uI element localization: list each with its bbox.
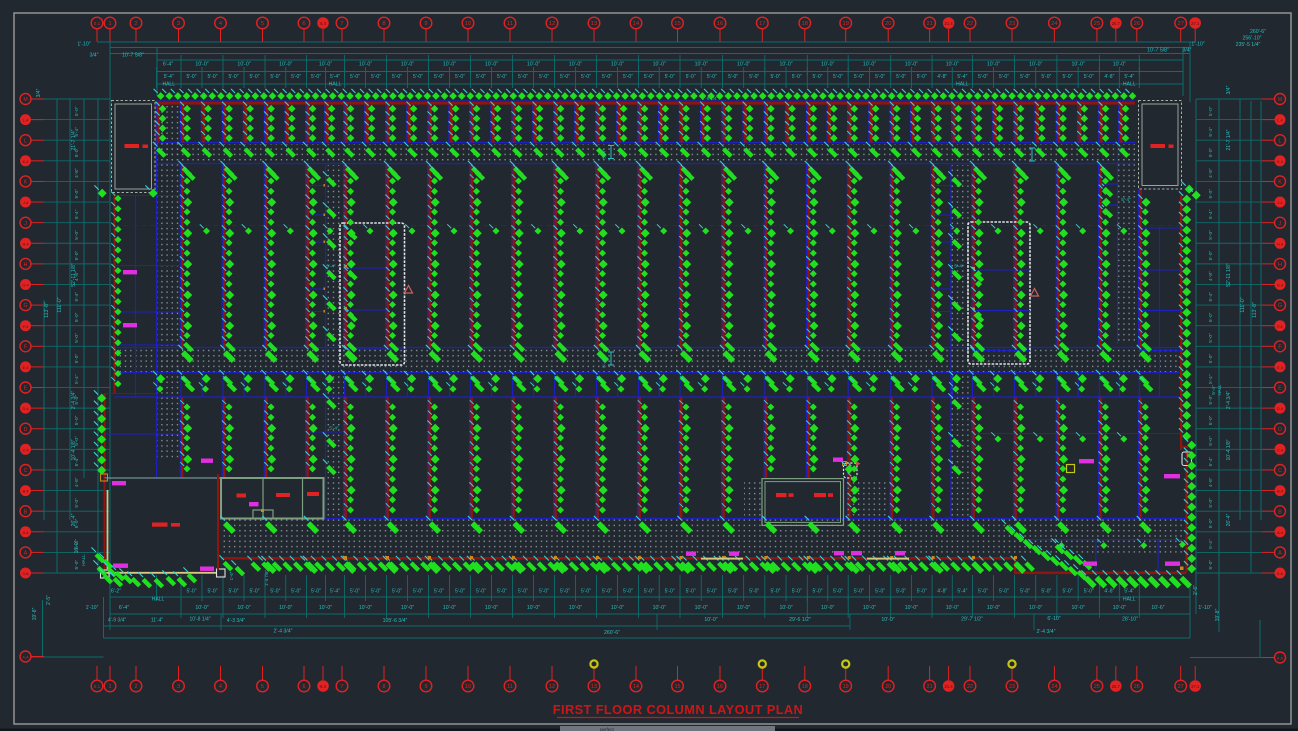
svg-text:25: 25: [1094, 21, 1100, 27]
svg-text:1′-10″: 1′-10″: [86, 605, 99, 611]
svg-text:5′-0″: 5′-0″: [311, 74, 321, 80]
svg-text:D: D: [24, 427, 28, 433]
svg-text:113′-8″: 113′-8″: [1252, 302, 1258, 318]
svg-text:5′-4″: 5′-4″: [1208, 292, 1214, 302]
svg-text:5′-0″: 5′-0″: [74, 250, 80, 260]
svg-text:11: 11: [507, 21, 513, 27]
svg-text:10′-0″: 10′-0″: [359, 605, 372, 611]
svg-text:B.4: B.4: [1277, 489, 1284, 494]
svg-text:22: 22: [967, 684, 973, 690]
svg-text:9: 9: [424, 21, 427, 27]
svg-text:D.4: D.4: [1277, 406, 1284, 411]
svg-text:26: 26: [1134, 684, 1140, 690]
svg-text:5′-0″: 5′-0″: [74, 147, 80, 157]
svg-text:3/4″: 3/4″: [1182, 48, 1191, 54]
svg-text:5′-0″: 5′-0″: [74, 354, 80, 364]
svg-text:2′-4 3/4″: 2′-4 3/4″: [1037, 629, 1056, 635]
svg-text:5′-0″: 5′-0″: [434, 589, 444, 595]
svg-text:5′-0″: 5′-0″: [707, 589, 717, 595]
svg-text:5′-0″: 5′-0″: [270, 589, 280, 595]
svg-text:2: 2: [134, 21, 137, 27]
svg-text:HALL: HALL: [81, 554, 86, 566]
svg-text:6.4: 6.4: [320, 684, 326, 689]
svg-text:5′-4″: 5′-4″: [74, 539, 80, 549]
svg-text:10′-0″: 10′-0″: [946, 605, 959, 611]
svg-text:5′-4″: 5′-4″: [1208, 209, 1214, 219]
svg-text:5′-0″: 5′-0″: [350, 589, 360, 595]
svg-text:21: 21: [926, 21, 932, 27]
svg-text:10′-0″: 10′-0″: [485, 62, 498, 68]
svg-text:5′-0″: 5′-0″: [602, 589, 612, 595]
svg-text:K.4: K.4: [1277, 159, 1284, 164]
svg-text:10′-0″: 10′-0″: [905, 62, 918, 68]
svg-text:5′-0″: 5′-0″: [1208, 395, 1214, 405]
svg-text:10′-0″: 10′-0″: [319, 605, 332, 611]
svg-text:5′-4″: 5′-4″: [1208, 539, 1214, 549]
svg-text:5′-4″: 5′-4″: [74, 127, 80, 137]
svg-text:HALL: HALL: [329, 82, 342, 88]
svg-text:2′-5″: 2′-5″: [46, 595, 52, 605]
svg-text:5′-0″: 5′-0″: [1041, 589, 1051, 595]
svg-text:24: 24: [1051, 21, 1058, 27]
svg-text:4′-8″: 4′-8″: [1208, 477, 1214, 487]
svg-text:15: 15: [674, 21, 680, 27]
svg-text:2: 2: [135, 684, 138, 690]
svg-text:5′-4″: 5′-4″: [1208, 127, 1214, 137]
svg-text:5′-0″: 5′-0″: [291, 74, 301, 80]
svg-text:27: 27: [1178, 684, 1184, 690]
svg-text:5′-0″: 5′-0″: [896, 74, 906, 80]
svg-text:5′-0″: 5′-0″: [560, 589, 570, 595]
svg-text:H.4: H.4: [1277, 241, 1284, 246]
svg-text:12: 12: [549, 684, 555, 690]
svg-text:5′-0″: 5′-0″: [187, 74, 197, 80]
svg-text:14: 14: [633, 21, 640, 27]
svg-text:D.4: D.4: [22, 406, 29, 411]
svg-text:14: 14: [633, 684, 639, 690]
svg-text:1′-4 7/8″: 1′-4 7/8″: [264, 570, 269, 586]
svg-text:21: 21: [927, 684, 933, 690]
svg-text:10′-0″: 10′-0″: [569, 62, 582, 68]
svg-text:K.4: K.4: [23, 159, 30, 164]
svg-text:5′-0″: 5′-0″: [74, 415, 80, 425]
svg-text:18: 18: [802, 684, 808, 690]
svg-text:C: C: [1278, 468, 1282, 474]
svg-text:5′-4″: 5′-4″: [74, 209, 80, 219]
svg-text:5′-0″: 5′-0″: [74, 518, 80, 528]
svg-text:10: 10: [465, 21, 471, 27]
svg-text:21.4: 21.4: [945, 21, 954, 26]
svg-text:5′-0″: 5′-0″: [350, 74, 360, 80]
svg-text:5′-0″: 5′-0″: [644, 589, 654, 595]
svg-text:5′-0″: 5′-0″: [1041, 74, 1051, 80]
svg-text:5: 5: [261, 21, 264, 27]
svg-text:5′-0″: 5′-0″: [518, 74, 528, 80]
svg-text:6′-4″: 6′-4″: [163, 62, 173, 68]
svg-text:5′-4″: 5′-4″: [602, 358, 608, 368]
svg-text:10′-0″: 10′-0″: [737, 605, 750, 611]
svg-text:5′-0″: 5′-0″: [1084, 589, 1094, 595]
svg-text:C.4: C.4: [22, 447, 29, 452]
svg-text:111′-0″: 111′-0″: [57, 297, 63, 312]
svg-text:3/4″: 3/4″: [36, 88, 42, 97]
svg-text:10′-0″: 10′-0″: [779, 62, 792, 68]
svg-text:10′-0″: 10′-0″: [1072, 605, 1085, 611]
svg-text:5′-0″: 5′-0″: [74, 230, 80, 240]
svg-text:5′-4″: 5′-4″: [329, 426, 339, 432]
svg-text:HALL: HALL: [1217, 384, 1222, 396]
svg-text:A.4: A.4: [1277, 530, 1284, 535]
svg-text:K: K: [24, 180, 28, 186]
svg-text:L.4: L.4: [23, 118, 29, 123]
svg-text:11′-4″: 11′-4″: [151, 618, 164, 624]
svg-text:B: B: [24, 509, 28, 515]
svg-text:5′-0″: 5′-0″: [999, 74, 1009, 80]
svg-text:26: 26: [1134, 21, 1140, 27]
svg-text:5′-0″: 5′-0″: [813, 589, 823, 595]
svg-text:10′-0″: 10′-0″: [527, 62, 540, 68]
svg-text:5′-0″: 5′-0″: [539, 589, 549, 595]
svg-text:5′-0″: 5′-0″: [999, 589, 1009, 595]
svg-text:10′-0″: 10′-0″: [569, 605, 582, 611]
svg-text:12: 12: [549, 21, 555, 27]
svg-text:5′-0″: 5′-0″: [623, 74, 633, 80]
svg-text:C.4: C.4: [1277, 447, 1284, 452]
svg-text:5′-0″: 5′-0″: [875, 589, 885, 595]
svg-text:1′-9 1/4″: 1′-9 1/4″: [702, 96, 718, 101]
svg-text:8: 8: [382, 21, 385, 27]
svg-text:5′-4″: 5′-4″: [1121, 197, 1131, 203]
svg-text:A.A: A.A: [1277, 656, 1284, 661]
svg-text:5′-0″: 5′-0″: [74, 333, 80, 343]
svg-text:5′-0″: 5′-0″: [854, 589, 864, 595]
svg-text:8: 8: [383, 684, 386, 690]
svg-text:10′-0″: 10′-0″: [704, 617, 717, 623]
svg-text:19: 19: [843, 684, 849, 690]
svg-text:24: 24: [1051, 684, 1057, 690]
svg-text:B: B: [1278, 509, 1282, 515]
svg-text:5′-0″: 5′-0″: [854, 74, 864, 80]
svg-text:10′-0″: 10′-0″: [319, 62, 332, 68]
svg-text:10′-0″: 10′-0″: [821, 605, 834, 611]
svg-text:10′-0″: 10′-0″: [237, 62, 250, 68]
svg-text:10′-0″: 10′-0″: [195, 62, 208, 68]
svg-text:7: 7: [341, 684, 344, 690]
svg-text:5′-0″: 5′-0″: [1020, 589, 1030, 595]
svg-text:4: 4: [219, 684, 222, 690]
svg-text:3: 3: [177, 21, 180, 27]
svg-text:5′-0″: 5′-0″: [560, 74, 570, 80]
svg-text:29′-6 1/2″: 29′-6 1/2″: [789, 617, 811, 623]
svg-text:5′-0″: 5′-0″: [413, 74, 423, 80]
svg-text:4′-8″: 4′-8″: [1208, 271, 1214, 281]
svg-text:10′-0″: 10′-0″: [653, 62, 666, 68]
svg-text:19′-8″: 19′-8″: [1215, 608, 1221, 621]
svg-text:4′-8″: 4′-8″: [74, 477, 80, 487]
svg-text:10′-0″: 10′-0″: [737, 62, 750, 68]
svg-text:1′-10″: 1′-10″: [1198, 605, 1211, 611]
svg-text:10′-0″: 10′-0″: [1113, 62, 1126, 68]
svg-text:5′-4″: 5′-4″: [74, 374, 80, 384]
svg-text:10′-0″: 10′-0″: [527, 605, 540, 611]
svg-text:13: 13: [591, 21, 597, 27]
svg-text:5: 5: [261, 684, 264, 690]
svg-text:10′-6″: 10′-6″: [1151, 605, 1164, 611]
svg-text:10′-0″: 10′-0″: [443, 605, 456, 611]
svg-text:10′-0″: 10′-0″: [485, 605, 498, 611]
svg-text:10′-0″: 10′-0″: [1029, 62, 1042, 68]
svg-text:21.4: 21.4: [945, 684, 954, 689]
svg-text:5′-4″: 5′-4″: [1208, 457, 1214, 467]
svg-text:5′-4″: 5′-4″: [326, 264, 336, 269]
svg-text:5′-0″: 5′-0″: [539, 74, 549, 80]
svg-text:10′-0″: 10′-0″: [987, 605, 1000, 611]
svg-text:HALL: HALL: [1123, 82, 1136, 88]
svg-text:5′-0″: 5′-0″: [74, 106, 80, 116]
svg-text:5′-0″: 5′-0″: [749, 589, 759, 595]
svg-text:6′-4″: 6′-4″: [119, 605, 129, 611]
svg-text:4′-8″: 4′-8″: [1104, 589, 1114, 595]
svg-text:10′-0″: 10′-0″: [987, 62, 1000, 68]
svg-text:5′-0″: 5′-0″: [665, 74, 675, 80]
svg-text:5′-0″: 5′-0″: [1063, 74, 1073, 80]
svg-text:5′-0″: 5′-0″: [74, 312, 80, 322]
svg-text:6: 6: [303, 684, 306, 690]
svg-text:6′-2″: 6′-2″: [111, 589, 121, 595]
svg-text:5′-0″: 5′-0″: [749, 74, 759, 80]
svg-text:10′-7 5/8″: 10′-7 5/8″: [1147, 48, 1169, 54]
svg-text:5′-0″: 5′-0″: [623, 589, 633, 595]
svg-text:5′-0″: 5′-0″: [187, 589, 197, 595]
svg-text:5′-0″: 5′-0″: [413, 589, 423, 595]
svg-text:L: L: [24, 138, 27, 144]
svg-text:10′-0″: 10′-0″: [443, 62, 456, 68]
svg-text:10′-0″: 10′-0″: [195, 605, 208, 611]
svg-text:J.4: J.4: [23, 200, 29, 205]
svg-text:F.4: F.4: [23, 324, 29, 329]
svg-text:perfect: perfect: [600, 727, 615, 731]
svg-text:3/4″: 3/4″: [89, 53, 98, 59]
svg-text:25: 25: [1094, 684, 1100, 690]
svg-text:5′-0″: 5′-0″: [644, 74, 654, 80]
svg-text:5′-4″: 5′-4″: [330, 74, 340, 80]
svg-text:5′-0″: 5′-0″: [1208, 312, 1214, 322]
svg-text:5′-0″: 5′-0″: [1208, 250, 1214, 260]
svg-text:A.A: A.A: [22, 655, 29, 660]
svg-text:5′-0″: 5′-0″: [978, 589, 988, 595]
svg-text:4′-8″: 4′-8″: [937, 74, 947, 80]
svg-text:19′-8″: 19′-8″: [32, 607, 38, 620]
svg-text:FIRST FLOOR COLUMN LAYOUT PLAN: FIRST FLOOR COLUMN LAYOUT PLAN: [553, 702, 803, 717]
svg-text:4′-8″: 4′-8″: [1208, 168, 1214, 178]
svg-text:23: 23: [1009, 684, 1015, 690]
svg-text:22: 22: [967, 21, 973, 27]
svg-text:5′-0″: 5′-0″: [1208, 415, 1214, 425]
svg-text:5′-0″: 5′-0″: [208, 74, 218, 80]
svg-text:5′-0″: 5′-0″: [686, 589, 696, 595]
svg-text:5′-0″: 5′-0″: [728, 589, 738, 595]
svg-text:5′-4″: 5′-4″: [957, 589, 967, 595]
svg-text:3/4″: 3/4″: [1226, 85, 1232, 94]
svg-text:5′-0″: 5′-0″: [208, 589, 218, 595]
svg-text:G.4: G.4: [22, 283, 29, 288]
svg-text:10′-0″: 10′-0″: [401, 62, 414, 68]
svg-text:5′-0″: 5′-0″: [311, 589, 321, 595]
svg-text:1′-10″: 1′-10″: [1191, 42, 1204, 48]
svg-text:A: A: [24, 550, 28, 556]
svg-text:5′-0″: 5′-0″: [518, 589, 528, 595]
svg-text:20: 20: [885, 21, 891, 27]
svg-text:5′-0″: 5′-0″: [476, 74, 486, 80]
svg-text:28′-10″: 28′-10″: [1122, 617, 1138, 623]
svg-text:5′-0″: 5′-0″: [497, 589, 507, 595]
svg-text:4′-8″: 4′-8″: [937, 589, 947, 595]
svg-text:5′-0″: 5′-0″: [770, 74, 780, 80]
svg-text:5′-0″: 5′-0″: [1084, 74, 1094, 80]
svg-text:23: 23: [1009, 21, 1015, 27]
svg-text:5′-4″: 5′-4″: [74, 292, 80, 302]
svg-text:5′-0″: 5′-0″: [74, 560, 80, 570]
svg-text:6′-10″: 6′-10″: [1047, 616, 1060, 622]
svg-text:5′-0″: 5′-0″: [1208, 333, 1214, 343]
svg-text:H: H: [24, 262, 28, 268]
svg-text:4′-8″: 4′-8″: [74, 168, 80, 178]
svg-text:L: L: [1279, 138, 1282, 144]
svg-text:5′-0″: 5′-0″: [74, 498, 80, 508]
svg-text:5′-0″: 5′-0″: [813, 74, 823, 80]
svg-text:5′-4″: 5′-4″: [1124, 589, 1134, 595]
svg-text:0.A: 0.A: [1277, 571, 1283, 576]
svg-text:5′-4″: 5′-4″: [954, 264, 964, 269]
svg-text:10′-0″: 10′-0″: [1072, 62, 1085, 68]
svg-text:10′-0″: 10′-0″: [695, 62, 708, 68]
svg-text:5′-0″: 5′-0″: [1208, 560, 1214, 570]
svg-text:E.4: E.4: [1277, 365, 1284, 370]
svg-text:10′-0″: 10′-0″: [653, 605, 666, 611]
svg-text:10′-0″: 10′-0″: [611, 62, 624, 68]
svg-text:M: M: [1278, 97, 1282, 103]
svg-text:10′-0″: 10′-0″: [1113, 605, 1126, 611]
svg-text:10′-0″: 10′-0″: [905, 605, 918, 611]
svg-text:5′-4″: 5′-4″: [164, 74, 174, 80]
svg-text:1′-6″: 1′-6″: [229, 571, 234, 580]
svg-text:J.4: J.4: [1277, 200, 1283, 205]
svg-text:11: 11: [507, 684, 513, 690]
svg-text:5′-0″: 5′-0″: [1208, 498, 1214, 508]
svg-text:5′-0″: 5′-0″: [74, 395, 80, 405]
svg-text:5′-0″: 5′-0″: [602, 74, 612, 80]
svg-text:10′-0″: 10′-0″: [401, 605, 414, 611]
svg-text:0.A: 0.A: [23, 571, 29, 576]
svg-text:HALL: HALL: [152, 597, 165, 603]
svg-text:6: 6: [302, 21, 305, 27]
svg-text:D: D: [1278, 427, 1282, 433]
svg-text:G: G: [1278, 303, 1282, 309]
svg-text:5′-0″: 5′-0″: [792, 74, 802, 80]
svg-text:15: 15: [675, 684, 681, 690]
svg-text:5′-0″: 5′-0″: [434, 74, 444, 80]
svg-text:5′-0″: 5′-0″: [1208, 147, 1214, 157]
svg-text:5′-0″: 5′-0″: [476, 589, 486, 595]
svg-text:10′-0″: 10′-0″: [779, 605, 792, 611]
svg-text:E: E: [1278, 386, 1282, 392]
svg-text:13: 13: [591, 684, 597, 690]
svg-text:4′-8″: 4′-8″: [1104, 74, 1114, 80]
svg-text:5′-0″: 5′-0″: [875, 74, 885, 80]
svg-text:5′-0″: 5′-0″: [1208, 106, 1214, 116]
svg-text:105′-6 3/4″: 105′-6 3/4″: [383, 618, 408, 624]
svg-text:J: J: [24, 221, 27, 227]
svg-text:5′-0″: 5′-0″: [229, 74, 239, 80]
svg-text:111′-0″: 111′-0″: [1240, 297, 1246, 312]
svg-text:5′-4″: 5′-4″: [602, 149, 608, 159]
svg-text:19: 19: [842, 21, 848, 27]
svg-text:5′-0″: 5′-0″: [1020, 74, 1030, 80]
svg-text:1: 1: [108, 21, 111, 27]
svg-text:H.4: H.4: [22, 241, 29, 246]
svg-text:4′-8″: 4′-8″: [74, 271, 80, 281]
svg-text:5′-4″: 5′-4″: [1208, 374, 1214, 384]
svg-text:5′-0″: 5′-0″: [74, 189, 80, 199]
svg-text:5′-0″: 5′-0″: [371, 589, 381, 595]
svg-text:5′-0″: 5′-0″: [455, 589, 465, 595]
svg-text:27: 27: [1177, 21, 1183, 27]
svg-text:25.7: 25.7: [1112, 21, 1121, 26]
svg-text:18: 18: [802, 21, 808, 27]
svg-text:5′-0″: 5′-0″: [1208, 518, 1214, 528]
svg-text:25.7: 25.7: [1112, 684, 1121, 689]
svg-text:16: 16: [717, 21, 723, 27]
svg-text:HALL: HALL: [162, 82, 175, 88]
svg-text:G.4: G.4: [1277, 283, 1284, 288]
svg-text:10′-0″: 10′-0″: [1029, 605, 1042, 611]
svg-text:5′-0″: 5′-0″: [770, 589, 780, 595]
svg-text:5′-0″: 5′-0″: [1208, 436, 1214, 446]
svg-text:17: 17: [759, 21, 765, 27]
svg-text:2′-6″: 2′-6″: [1193, 585, 1199, 595]
svg-text:5′-0″: 5′-0″: [896, 589, 906, 595]
svg-text:10′-0″: 10′-0″: [821, 62, 834, 68]
svg-text:5′-0″: 5′-0″: [250, 74, 260, 80]
svg-text:5′-0″: 5′-0″: [1208, 354, 1214, 364]
svg-text:5′-0″: 5′-0″: [665, 589, 675, 595]
svg-text:10′-0″: 10′-0″: [695, 605, 708, 611]
svg-text:10′-0″: 10′-0″: [611, 605, 624, 611]
svg-text:M: M: [23, 97, 27, 103]
svg-text:10′-0″: 10′-0″: [881, 617, 894, 623]
svg-text:5′-4″: 5′-4″: [74, 457, 80, 467]
svg-text:F: F: [1278, 344, 1281, 350]
svg-text:5′-4″: 5′-4″: [957, 74, 967, 80]
svg-text:256′-10″: 256′-10″: [1243, 36, 1262, 42]
svg-text:17: 17: [759, 684, 765, 690]
svg-text:J: J: [1279, 221, 1282, 227]
svg-text:10′-4 1/8″: 10′-4 1/8″: [1226, 439, 1232, 460]
svg-text:5′-0″: 5′-0″: [581, 74, 591, 80]
svg-text:5′-4″: 5′-4″: [1124, 74, 1134, 80]
svg-text:5′-0″: 5′-0″: [291, 589, 301, 595]
svg-text:5′-0″: 5′-0″: [581, 589, 591, 595]
svg-text:HALL: HALL: [1123, 597, 1136, 603]
svg-text:5′-0″: 5′-0″: [74, 436, 80, 446]
svg-text:5′-0″: 5′-0″: [371, 74, 381, 80]
svg-text:52′-11 1/8″: 52′-11 1/8″: [1226, 263, 1232, 287]
svg-text:10′-0″: 10′-0″: [359, 62, 372, 68]
svg-text:29′-7 1/2″: 29′-7 1/2″: [961, 617, 983, 623]
svg-text:E.4: E.4: [23, 365, 30, 370]
svg-text:F: F: [24, 344, 27, 350]
svg-text:20: 20: [885, 684, 891, 690]
